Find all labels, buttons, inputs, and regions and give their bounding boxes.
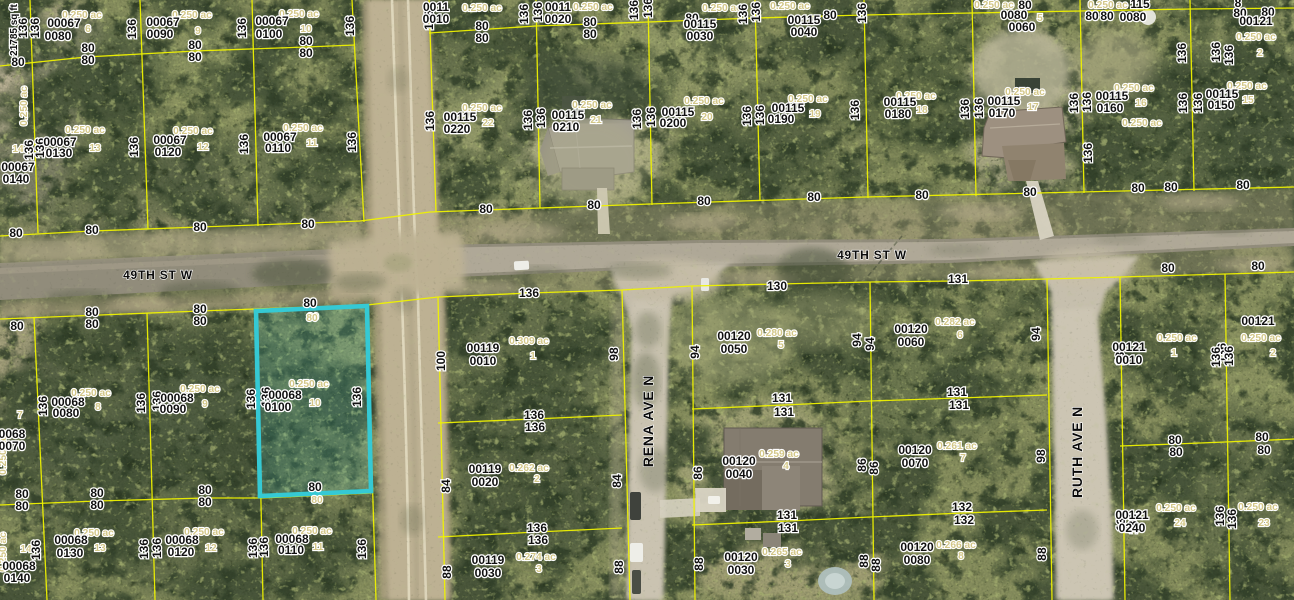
svg-text:3: 3 bbox=[785, 559, 791, 570]
svg-text:80: 80 bbox=[9, 226, 23, 240]
svg-text:00120: 00120 bbox=[717, 329, 751, 343]
svg-text:80: 80 bbox=[85, 317, 99, 331]
svg-text:136: 136 bbox=[753, 105, 767, 125]
svg-text:13: 13 bbox=[89, 143, 101, 154]
svg-text:00119: 00119 bbox=[472, 553, 505, 567]
svg-text:10: 10 bbox=[309, 398, 321, 409]
svg-text:136: 136 bbox=[749, 2, 763, 22]
svg-text:0.250 ac: 0.250 ac bbox=[573, 2, 613, 13]
svg-text:136: 136 bbox=[1225, 509, 1239, 529]
svg-text:86: 86 bbox=[691, 466, 705, 480]
svg-text:80: 80 bbox=[1131, 181, 1145, 195]
svg-text:0080: 0080 bbox=[53, 406, 80, 420]
svg-text:80: 80 bbox=[697, 194, 711, 208]
svg-text:88: 88 bbox=[440, 565, 454, 579]
svg-text:1: 1 bbox=[1171, 348, 1177, 359]
svg-text:136: 136 bbox=[972, 98, 986, 118]
svg-text:0140: 0140 bbox=[3, 172, 30, 186]
svg-text:0.250 ac: 0.250 ac bbox=[1157, 333, 1197, 344]
svg-text:2: 2 bbox=[1270, 348, 1276, 359]
svg-text:22: 22 bbox=[482, 118, 494, 129]
svg-text:136: 136 bbox=[630, 109, 644, 129]
svg-text:0070: 0070 bbox=[0, 439, 26, 453]
svg-text:0010: 0010 bbox=[423, 12, 450, 26]
svg-text:0.250 ac: 0.250 ac bbox=[1156, 503, 1196, 514]
svg-text:132: 132 bbox=[954, 513, 974, 527]
svg-text:0.250 ac: 0.250 ac bbox=[1236, 32, 1276, 43]
svg-text:0120: 0120 bbox=[168, 545, 195, 559]
svg-text:0060: 0060 bbox=[898, 335, 925, 349]
svg-text:0040: 0040 bbox=[791, 25, 818, 39]
svg-text:136: 136 bbox=[125, 19, 139, 39]
svg-text:0070: 0070 bbox=[902, 456, 929, 470]
svg-text:136: 136 bbox=[244, 389, 258, 409]
svg-text:0140: 0140 bbox=[4, 571, 31, 585]
svg-text:136: 136 bbox=[641, 0, 655, 18]
svg-text:136: 136 bbox=[528, 533, 548, 547]
svg-text:136: 136 bbox=[423, 111, 437, 131]
svg-text:0210: 0210 bbox=[553, 120, 580, 134]
svg-text:136: 136 bbox=[627, 0, 641, 20]
svg-text:0220: 0220 bbox=[444, 122, 471, 136]
svg-text:0.282 ac: 0.282 ac bbox=[935, 317, 975, 328]
svg-text:16: 16 bbox=[1135, 98, 1147, 109]
svg-text:80: 80 bbox=[10, 319, 24, 333]
svg-text:80: 80 bbox=[198, 495, 212, 509]
svg-text:88: 88 bbox=[612, 560, 626, 574]
svg-text:8: 8 bbox=[958, 551, 964, 562]
svg-text:80: 80 bbox=[1023, 185, 1037, 199]
svg-text:24: 24 bbox=[1174, 518, 1186, 529]
svg-text:0170: 0170 bbox=[989, 106, 1016, 120]
svg-text:00120: 00120 bbox=[894, 322, 928, 336]
svg-text:136: 136 bbox=[1191, 93, 1205, 113]
svg-text:136: 136 bbox=[519, 286, 539, 300]
svg-text:11: 11 bbox=[313, 542, 324, 553]
svg-text:19: 19 bbox=[809, 109, 821, 120]
svg-text:80: 80 bbox=[1169, 445, 1183, 459]
svg-text:136: 136 bbox=[1209, 42, 1223, 62]
svg-text:136: 136 bbox=[235, 18, 249, 38]
svg-text:136: 136 bbox=[237, 134, 251, 154]
svg-text:0100: 0100 bbox=[256, 27, 283, 41]
svg-text:00120: 00120 bbox=[900, 540, 934, 554]
svg-text:80: 80 bbox=[1257, 443, 1271, 457]
svg-text:136: 136 bbox=[855, 3, 869, 23]
svg-text:136: 136 bbox=[127, 137, 141, 157]
svg-text:8: 8 bbox=[1235, 0, 1242, 10]
svg-text:6: 6 bbox=[957, 330, 963, 341]
svg-text:00120: 00120 bbox=[898, 443, 932, 457]
svg-text:9: 9 bbox=[202, 399, 208, 410]
svg-text:131: 131 bbox=[948, 272, 968, 286]
svg-text:80: 80 bbox=[1085, 9, 1099, 23]
svg-text:80: 80 bbox=[807, 190, 821, 204]
svg-text:0080: 0080 bbox=[45, 29, 72, 43]
svg-text:80: 80 bbox=[299, 46, 313, 60]
svg-text:0.250 ac: 0.250 ac bbox=[462, 3, 502, 14]
svg-text:00068: 00068 bbox=[54, 533, 88, 547]
svg-text:84: 84 bbox=[439, 479, 453, 493]
svg-text:00121: 00121 bbox=[1241, 314, 1275, 328]
svg-text:80: 80 bbox=[193, 220, 207, 234]
svg-text:80: 80 bbox=[475, 31, 489, 45]
svg-text:0.274 ac: 0.274 ac bbox=[516, 552, 556, 563]
svg-text:136: 136 bbox=[355, 539, 369, 559]
svg-text:12: 12 bbox=[205, 543, 217, 554]
svg-text:0.309 ac: 0.309 ac bbox=[509, 336, 549, 347]
svg-text:0030: 0030 bbox=[687, 29, 714, 43]
svg-text:0010: 0010 bbox=[1116, 353, 1143, 367]
svg-text:8: 8 bbox=[95, 402, 101, 413]
svg-text:94: 94 bbox=[1029, 327, 1043, 341]
svg-text:88: 88 bbox=[692, 557, 706, 571]
svg-text:100: 100 bbox=[434, 351, 448, 371]
svg-text:21785 sq ft: 21785 sq ft bbox=[9, 3, 20, 55]
svg-text:80: 80 bbox=[823, 8, 837, 22]
svg-text:00121: 00121 bbox=[1112, 340, 1146, 354]
svg-text:136: 136 bbox=[1209, 347, 1223, 367]
svg-text:80: 80 bbox=[1161, 261, 1175, 275]
svg-text:0060: 0060 bbox=[1009, 20, 1036, 34]
svg-text:3: 3 bbox=[536, 564, 542, 575]
svg-text:88: 88 bbox=[1035, 547, 1049, 561]
svg-text:0110: 0110 bbox=[278, 543, 304, 557]
svg-text:0200: 0200 bbox=[660, 116, 687, 130]
svg-text:136: 136 bbox=[137, 539, 151, 559]
svg-text:94: 94 bbox=[850, 333, 864, 347]
svg-text:136: 136 bbox=[150, 538, 164, 558]
svg-text:0.250 ac: 0.250 ac bbox=[770, 1, 810, 12]
svg-text:00119: 00119 bbox=[467, 341, 500, 355]
svg-text:0160: 0160 bbox=[1097, 101, 1124, 115]
svg-text:136: 136 bbox=[525, 420, 545, 434]
svg-text:6: 6 bbox=[85, 24, 91, 35]
svg-text:0090: 0090 bbox=[160, 402, 187, 416]
svg-text:0030: 0030 bbox=[728, 563, 755, 577]
svg-text:80: 80 bbox=[306, 313, 318, 324]
svg-text:0.262 ac: 0.262 ac bbox=[509, 463, 549, 474]
svg-text:136: 136 bbox=[1067, 93, 1081, 113]
svg-text:0.266 ac: 0.266 ac bbox=[936, 540, 976, 551]
svg-text:136: 136 bbox=[740, 106, 754, 126]
svg-text:0020: 0020 bbox=[472, 475, 499, 489]
svg-text:131: 131 bbox=[947, 385, 967, 399]
svg-text:136: 136 bbox=[1175, 43, 1189, 63]
svg-text:80: 80 bbox=[1164, 180, 1178, 194]
svg-text:136: 136 bbox=[29, 540, 43, 560]
svg-text:136: 136 bbox=[1222, 45, 1236, 65]
svg-text:80: 80 bbox=[11, 55, 25, 69]
svg-text:00121: 00121 bbox=[1115, 508, 1149, 522]
svg-text:17: 17 bbox=[1027, 102, 1039, 113]
svg-text:80: 80 bbox=[587, 198, 601, 212]
svg-text:0050: 0050 bbox=[721, 342, 748, 356]
svg-text:98: 98 bbox=[607, 347, 621, 361]
svg-text:80: 80 bbox=[583, 27, 597, 41]
svg-text:0.265 ac: 0.265 ac bbox=[762, 547, 802, 558]
svg-text:0.280 ac: 0.280 ac bbox=[757, 328, 797, 339]
svg-text:84: 84 bbox=[610, 474, 624, 488]
svg-text:0130: 0130 bbox=[46, 146, 73, 160]
svg-text:0190: 0190 bbox=[768, 112, 795, 126]
svg-text:136: 136 bbox=[517, 4, 531, 24]
svg-text:0010: 0010 bbox=[470, 354, 497, 368]
svg-text:80: 80 bbox=[1251, 259, 1265, 273]
svg-text:80: 80 bbox=[311, 495, 323, 506]
svg-text:136: 136 bbox=[1080, 92, 1094, 112]
svg-text:49TH ST W: 49TH ST W bbox=[837, 248, 907, 262]
svg-text:2: 2 bbox=[534, 474, 540, 485]
svg-text:136: 136 bbox=[350, 387, 364, 407]
svg-text:94: 94 bbox=[688, 345, 702, 359]
svg-text:0120: 0120 bbox=[155, 145, 182, 159]
svg-text:80: 80 bbox=[479, 202, 493, 216]
svg-text:0.250 ac: 0.250 ac bbox=[1122, 118, 1162, 129]
svg-text:80: 80 bbox=[915, 188, 929, 202]
svg-text:20: 20 bbox=[701, 112, 713, 123]
svg-text:00121: 00121 bbox=[1239, 14, 1273, 28]
svg-text:80: 80 bbox=[308, 480, 322, 494]
svg-text:80: 80 bbox=[193, 314, 207, 328]
svg-text:5: 5 bbox=[1037, 13, 1043, 24]
svg-text:80: 80 bbox=[303, 296, 317, 310]
svg-text:131: 131 bbox=[949, 398, 969, 412]
svg-text:0.259 ac: 0.259 ac bbox=[759, 449, 799, 460]
svg-text:88: 88 bbox=[869, 558, 883, 572]
svg-text:136: 136 bbox=[1222, 346, 1236, 366]
svg-text:131: 131 bbox=[778, 521, 798, 535]
svg-text:136: 136 bbox=[343, 16, 357, 36]
svg-text:86: 86 bbox=[867, 461, 881, 475]
svg-text:136: 136 bbox=[36, 396, 50, 416]
svg-text:0020: 0020 bbox=[545, 12, 572, 26]
svg-text:1: 1 bbox=[530, 351, 536, 362]
svg-text:49TH ST W: 49TH ST W bbox=[123, 268, 193, 282]
svg-text:0.261 ac: 0.261 ac bbox=[937, 441, 977, 452]
svg-text:80: 80 bbox=[1236, 178, 1250, 192]
svg-text:5: 5 bbox=[778, 340, 784, 351]
svg-text:130: 130 bbox=[767, 279, 787, 293]
svg-text:80: 80 bbox=[1255, 430, 1269, 444]
svg-text:136: 136 bbox=[1176, 93, 1190, 113]
svg-text:136: 136 bbox=[534, 108, 548, 128]
svg-text:136: 136 bbox=[345, 132, 359, 152]
svg-text:18: 18 bbox=[916, 105, 928, 116]
svg-text:21: 21 bbox=[590, 115, 602, 126]
svg-text:131: 131 bbox=[777, 508, 797, 522]
svg-text:00119: 00119 bbox=[469, 462, 502, 476]
svg-text:0080: 0080 bbox=[904, 553, 931, 567]
svg-text:0080: 0080 bbox=[1120, 10, 1147, 24]
svg-text:0110: 0110 bbox=[265, 141, 291, 155]
svg-text:00067: 00067 bbox=[255, 14, 289, 28]
svg-text:136: 136 bbox=[644, 107, 658, 127]
svg-text:0240: 0240 bbox=[1119, 521, 1146, 535]
svg-text:23: 23 bbox=[1258, 518, 1270, 529]
svg-text:80: 80 bbox=[188, 50, 202, 64]
svg-text:0100: 0100 bbox=[265, 400, 292, 414]
svg-text:2: 2 bbox=[1257, 48, 1263, 59]
svg-text:80: 80 bbox=[1100, 9, 1114, 23]
svg-text:00067: 00067 bbox=[47, 16, 81, 30]
svg-text:0.250 ac: 0.250 ac bbox=[1238, 502, 1278, 513]
svg-text:00120: 00120 bbox=[724, 550, 758, 564]
svg-text:4: 4 bbox=[783, 461, 789, 472]
svg-text:0180: 0180 bbox=[885, 107, 912, 121]
svg-text:136: 136 bbox=[958, 99, 972, 119]
svg-text:15: 15 bbox=[1242, 95, 1254, 106]
svg-text:80: 80 bbox=[85, 223, 99, 237]
svg-text:0.250 ac: 0.250 ac bbox=[19, 86, 30, 126]
svg-text:136: 136 bbox=[134, 393, 148, 413]
svg-text:131: 131 bbox=[774, 405, 794, 419]
svg-text:11: 11 bbox=[307, 138, 318, 149]
svg-text:80: 80 bbox=[81, 53, 95, 67]
svg-text:7: 7 bbox=[960, 453, 966, 464]
svg-text:00120: 00120 bbox=[722, 454, 756, 468]
svg-text:0150: 0150 bbox=[1208, 98, 1235, 112]
svg-text:RENA AVE N: RENA AVE N bbox=[640, 375, 656, 467]
svg-text:0030: 0030 bbox=[475, 566, 502, 580]
svg-text:0130: 0130 bbox=[57, 546, 84, 560]
svg-text:0040: 0040 bbox=[726, 467, 753, 481]
svg-text:98: 98 bbox=[1034, 449, 1048, 463]
svg-text:132: 132 bbox=[952, 500, 972, 514]
svg-text:12: 12 bbox=[197, 142, 209, 153]
svg-text:13: 13 bbox=[94, 543, 106, 554]
svg-text:0.250 ac: 0.250 ac bbox=[1241, 333, 1281, 344]
svg-text:136: 136 bbox=[848, 100, 862, 120]
svg-text:RUTH AVE N: RUTH AVE N bbox=[1069, 406, 1085, 498]
svg-text:131: 131 bbox=[772, 391, 792, 405]
svg-text:136: 136 bbox=[1081, 143, 1095, 163]
svg-text:9: 9 bbox=[195, 26, 201, 37]
svg-text:7: 7 bbox=[17, 410, 23, 421]
svg-text:94: 94 bbox=[863, 337, 877, 351]
svg-text:136: 136 bbox=[531, 2, 545, 22]
svg-text:80: 80 bbox=[90, 498, 104, 512]
svg-text:136: 136 bbox=[736, 4, 750, 24]
svg-text:80: 80 bbox=[301, 217, 315, 231]
svg-text:0090: 0090 bbox=[147, 27, 174, 41]
svg-text:136: 136 bbox=[257, 537, 271, 557]
svg-text:136: 136 bbox=[521, 110, 535, 130]
svg-text:80: 80 bbox=[15, 499, 29, 513]
svg-text:136: 136 bbox=[28, 18, 42, 38]
